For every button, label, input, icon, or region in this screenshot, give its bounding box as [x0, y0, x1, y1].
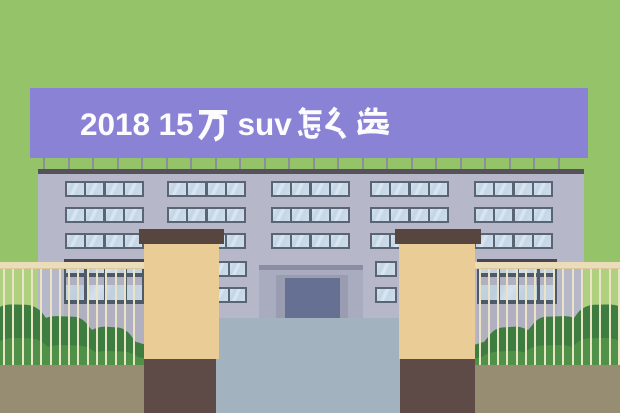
svg-text:2018: 2018	[80, 106, 150, 142]
svg-text:15: 15	[159, 106, 194, 142]
svg-text:suv: suv	[238, 106, 293, 142]
